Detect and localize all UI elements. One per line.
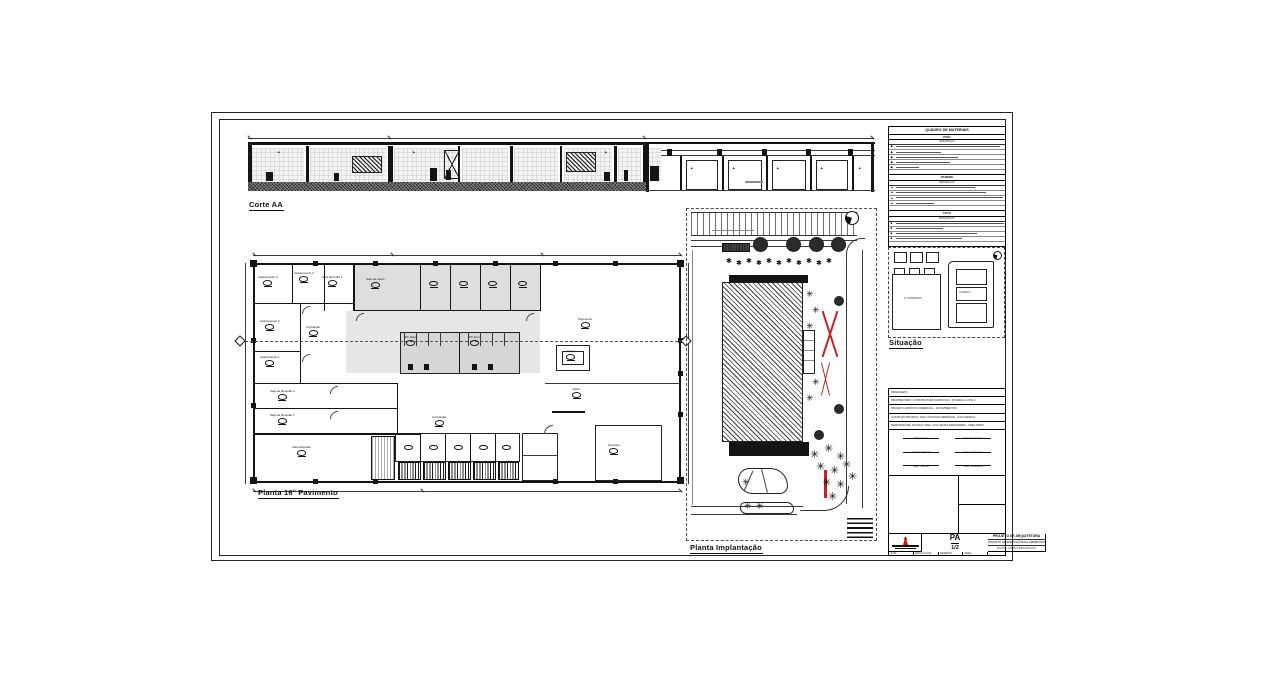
stair-line [804,350,814,351]
shrub-icon: ✱ [776,260,782,267]
room-label: Estar [572,388,581,399]
room-tag [479,444,488,451]
info-line: AUTOR DO PROJETO: ARQ. GUSTAVO HENRIQUE … [889,414,1005,422]
wc-stall [428,332,429,346]
hedge [722,243,750,252]
lamp-icon: ▲ [277,151,280,154]
building-stair-strip [803,330,815,374]
room-tag-oval [265,324,274,330]
stair-line [804,340,814,341]
column-marker [677,477,684,484]
column-marker [553,261,558,266]
diamond-icon: ◆ [891,151,895,154]
materials-title: QUADRO DE MATERIAIS [889,127,1005,135]
signature-field: Data / Assinatura [947,459,999,473]
footer-cell: ÁREA [963,552,988,555]
city-block [894,252,907,263]
room-area-bar [266,366,274,367]
elevator-shaft [498,462,519,480]
section-opening [816,160,848,190]
room-area-bar [266,330,274,331]
plan-room [595,425,662,481]
column-marker [678,412,683,417]
site-plan-title: Planta Implantação [690,543,763,554]
info-line: PRANCHETA [889,389,1005,397]
plan-wall [253,351,300,352]
room-tag [454,444,463,451]
north-arrow-icon [993,251,1002,260]
palm-icon: ✳ [848,472,857,483]
section-floor-line [646,190,875,191]
logo-bar [895,548,916,549]
beam-clip [762,149,767,156]
signature-field: Resp. Técnico [895,459,947,473]
room-area-bar [278,424,286,425]
room-tag-oval [609,448,618,454]
shrub-icon: ✱ [806,258,812,265]
shrub-icon: ✱ [766,258,772,265]
wc-fixture [408,364,413,370]
tree-icon [831,237,846,252]
drive-edge [862,250,863,508]
room-label: Circulação [432,416,446,427]
palm-icon: ✳ [830,466,839,477]
lamp-icon: ▲ [604,151,607,154]
room-label: Administração [292,446,311,457]
room-area-bar [567,360,575,361]
signature-field: Data / Assinatura [947,432,999,446]
street-name-bar [712,230,754,231]
elevator-shaft [398,462,421,480]
plan-wall [470,433,471,462]
sheet-code: PA [950,534,961,542]
plan-wall [459,332,460,374]
section-wall [462,148,508,182]
building-shadow [729,442,809,456]
room-label: Circulação [306,326,320,337]
sheet-number-cell: PA 1/2 [922,534,988,552]
lamp-icon: ▲ [776,167,779,170]
room-area-bar [309,336,317,337]
room-tag [518,280,527,288]
city-block-large [892,274,941,330]
section-title: Corte AA [249,200,284,211]
room-tag-oval [406,340,415,346]
plan-title: Planta 16° Pavimento [258,488,339,499]
fixture [334,173,339,181]
tree-icon [753,237,768,252]
column-marker [313,479,318,484]
square-icon: ■ [891,222,895,225]
palm-icon: ✳ [806,394,814,403]
plan-wall [495,433,496,462]
plan-counter [552,411,585,413]
column-marker [613,261,618,266]
triangle-icon: ▲ [891,186,895,189]
lamp-icon: ▲ [732,167,735,170]
signature-field: Autor do Projeto [895,446,947,460]
tree-icon [809,237,824,252]
beam-clip [848,149,853,156]
logo-bar [892,545,919,546]
room-label: Pavimento [578,318,592,329]
city-block [926,252,939,263]
wc-stall [492,332,493,346]
tree-icon [834,296,844,306]
room-tag-oval [371,282,380,288]
notes-box-right [959,476,1005,533]
drawing-sheet: ▲ ▲ ▲ ▲ ▲ ▲ ▲ ▲ Corte AA [0,0,1271,700]
shrub-icon: ✱ [826,258,832,265]
section-wall [514,148,558,182]
room-tag-oval [278,418,287,424]
room-label: WC Fem. [468,336,481,346]
diamond-icon: ◆ [891,161,895,164]
room-area-bar [298,456,306,457]
drive-edge [846,254,847,504]
fixture [650,166,659,181]
shrub-icon: ✱ [796,260,802,267]
plan-wall [445,433,446,462]
section-floor-hatch [248,182,646,191]
plan-wall [353,263,355,311]
section-column [766,156,768,191]
plan-wall [510,263,511,311]
section-column [680,156,682,191]
room-tag [404,444,413,451]
column-marker [678,371,683,376]
sheet-number: 1/2 [951,543,959,551]
room-tag-oval [572,392,581,398]
room-label: Sala de Apoio [366,278,385,289]
footer-cell: DATA [889,552,914,555]
triangle-icon: ▲ [891,202,895,205]
shrub-icon: ✱ [816,260,822,267]
room-area-bar [278,400,286,401]
room-tag-oval [297,450,306,456]
elevator-shaft [423,462,446,480]
crosswalk [847,518,873,539]
street-label: R. TIRADENTES [904,298,921,300]
service-room [522,433,558,481]
shrub-icon: ✱ [726,258,732,265]
diamond-icon: ◆ [891,145,895,148]
info-line: RESPONSÁVEL TÉCNICO: ENG. CIVIL MARIA FE… [889,422,1005,430]
fixture [266,172,273,181]
column-marker [493,261,498,266]
tree-icon [814,430,824,440]
section-slab [248,142,646,145]
wc-fixture [472,364,477,370]
room-tag-oval [299,276,308,282]
lamp-icon: ▲ [858,167,861,170]
room-label: Apartamento 1 [260,356,280,367]
palm-icon: ✳ [812,306,820,315]
room-label: Sala de Reunião 2 [270,390,295,401]
shrub-icon: ✱ [756,260,762,267]
subject-lot-hatched [956,303,987,323]
signature-field: Proprietário [895,432,947,446]
square-icon: ■ [891,227,895,230]
wc-fixture [488,364,493,370]
elevator-shaft [473,462,496,480]
signature-zone: Proprietário Data / Assinatura Autor do … [889,430,1005,476]
room-tag-oval [566,354,575,360]
section-column [646,142,649,192]
column-marker [677,260,684,267]
road-line [691,514,797,515]
palm-icon: ✳ [742,478,750,487]
plan-wall [397,383,398,435]
building-footprint [722,282,803,442]
room-tag [429,444,438,451]
room-label: Apartamento 4 [294,272,314,283]
stair-line [804,360,814,361]
section-cut-line [240,341,688,342]
room-area-bar [328,286,336,287]
square-icon: ■ [891,237,895,240]
room-area-bar [300,282,308,283]
section-dim-line [248,138,874,139]
plan-wall [253,408,398,409]
situacao-title: Situação [889,338,923,349]
diamond-icon: ◆ [891,166,895,169]
logo-flame-icon [902,536,909,546]
lot-parcel [956,269,987,285]
wc-fixture [424,364,429,370]
shrub-icon: ✱ [746,258,752,265]
section-column [722,156,724,191]
room-label: Apartamento 3 [258,276,278,287]
project-line3: PLANTA, CORTE E IMPLANTAÇÃO [988,546,1045,551]
room-tag-oval [278,394,287,400]
section-opening [728,160,762,190]
beam-clip [806,149,811,156]
room-area-bar [573,398,581,399]
tree-icon [786,237,801,252]
room-label: Depósito [608,444,620,455]
square-icon: ■ [891,232,895,235]
section-column [852,156,854,191]
footer-cell: DESENHO [939,552,964,555]
section-window [352,156,382,173]
sidewalk-paving [691,212,857,236]
plan-wall [480,263,481,311]
fixture [604,172,610,181]
stairs [371,436,395,480]
section-column [871,142,874,192]
notes-boxes [889,476,1005,534]
section-slab [646,142,875,144]
room-tag-oval [581,322,590,328]
plan-wall [253,263,255,483]
palm-icon: ✳ [812,378,820,387]
north-arrow-icon [845,211,859,225]
road-line [691,506,803,507]
section-column [810,156,812,191]
title-block: PRANCHETA PROPRIETÁRIO: CONSTRUTORA SANT… [888,388,1006,556]
signature-field: Data / Assinatura [947,446,999,460]
room-label: Copa [566,350,575,361]
fixture [430,168,437,181]
room-tag [429,280,438,288]
palm-icon: ✳ [806,322,814,331]
plan-wall [420,263,421,311]
room-tag [459,280,468,288]
plan-wall [253,383,398,384]
room-tag-oval [435,420,444,426]
diamond-icon: ◆ [891,156,895,159]
section-wall [618,148,641,182]
room-area-bar [435,426,443,427]
title-block-bottom: PROJETO DE ARQUITETURA PROJETO DE EDIFIC… [889,534,1005,555]
room-tag-oval [328,280,337,286]
column-marker [373,261,378,266]
room-tag-oval [309,330,318,336]
room-label: Apartamento 2 [260,320,280,331]
section-window [566,152,596,172]
palm-icon: ✳ [824,444,833,455]
room-label: Sala Reunião 1 [322,276,343,287]
section-note-bar [745,181,763,183]
sheet-titles: PROJETO DE ARQUITETURA PROJETO DE EDIFIC… [988,534,1046,552]
plan-wall [540,263,541,311]
lamp-icon: ▲ [820,167,823,170]
plan-dim-line [253,255,681,256]
palm-icon: ✳ [816,462,825,473]
fixture [624,170,628,181]
wc-stall [440,332,441,346]
beam-clip [667,149,672,156]
column-marker [313,261,318,266]
plan-wall [354,310,540,311]
lamp-icon: ▲ [690,167,693,170]
section-beam [646,150,875,151]
room-label: WC Masc. [404,336,418,346]
palm-icon: ✳ [810,450,819,461]
room-area-bar [610,454,618,455]
city-block [910,252,923,263]
room-area-bar [371,288,379,289]
room-tag [502,444,511,451]
footer-strip: DATA ESCALA 1/100 DESENHO ÁREA [889,552,988,555]
info-line: PROPRIETÁRIO: CONSTRUTORA SANTA IVAN - Q… [889,397,1005,405]
palm-icon: ✳ [806,290,814,299]
shrub-icon: ✱ [736,260,742,267]
plan-dim-line [245,263,246,484]
column-marker [250,260,257,267]
room-area-bar [581,328,589,329]
triangle-icon: ▲ [891,191,895,194]
plan-wall [300,303,301,383]
section-opening [686,160,718,190]
column-marker [250,477,257,484]
lot-edge [692,250,693,505]
room-label: Sala de Reunião 1 [270,414,295,425]
section-opening [772,160,806,190]
room-tag-oval [265,360,274,366]
lamp-icon: ▲ [412,151,415,154]
info-line: PROJETO: EDIFÍCIO COMERCIAL - 16 PAVIMEN… [889,405,1005,413]
column-marker [433,261,438,266]
room-area-bar [264,286,272,287]
situacao-map: R. TIRADENTES QUADRA 2 [888,247,1005,338]
plan-wall [253,303,353,304]
plan-wall [420,433,421,462]
room-tag [488,280,497,288]
elevator-shaft [448,462,471,480]
fixture [446,170,451,180]
triangle-icon: ▲ [891,197,895,200]
materials-table: QUADRO DE MATERIAIS PISO DESCRIÇÃO ◆ ◆ ◆… [888,126,1006,259]
plan-wall [522,455,558,456]
shrub-icon: ✱ [786,258,792,265]
lot-label: QUADRA 2 [959,292,971,294]
plan-wall [450,263,451,311]
tree-icon [834,404,844,414]
room-tag-oval [263,280,272,286]
office-logo [889,534,922,552]
lot-parcel [956,287,987,301]
footer-cell: ESCALA 1/100 [914,552,939,555]
plan-line [545,383,680,384]
notes-box-left [889,476,959,533]
room-tag-oval [470,340,479,346]
beam-clip [717,149,722,156]
wc-stall [504,332,505,346]
